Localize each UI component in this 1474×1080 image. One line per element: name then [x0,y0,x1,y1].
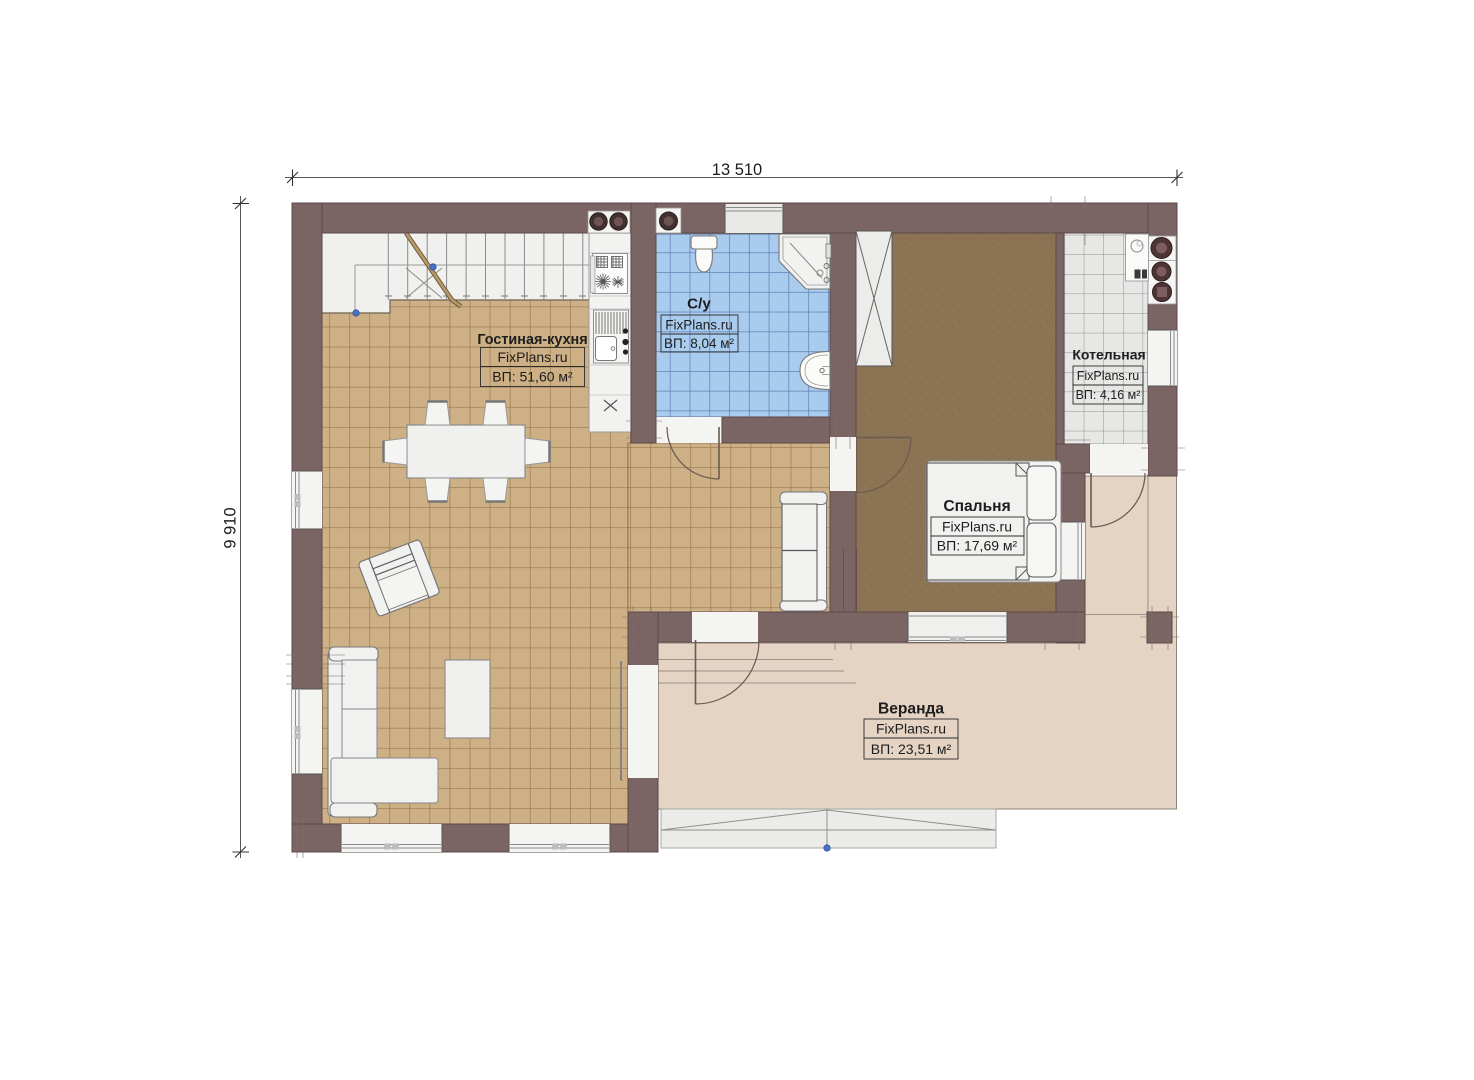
svg-text:Спальня: Спальня [943,498,1010,515]
svg-text:13 510: 13 510 [712,161,762,179]
svg-text:FixPlans.ru: FixPlans.ru [665,318,733,333]
svg-text:Веранда: Веранда [878,701,944,718]
svg-text:ВП: 4,16 м²: ВП: 4,16 м² [1076,388,1141,402]
svg-text:ВП: 23,51 м²: ВП: 23,51 м² [871,741,952,757]
svg-text:ВП: 51,60 м²: ВП: 51,60 м² [492,369,573,385]
svg-text:С/у: С/у [687,296,711,313]
svg-text:Котельная: Котельная [1072,347,1145,363]
svg-text:ВП: 8,04 м²: ВП: 8,04 м² [664,336,735,351]
svg-text:FixPlans.ru: FixPlans.ru [497,349,567,365]
svg-text:FixPlans.ru: FixPlans.ru [1077,369,1140,383]
svg-text:FixPlans.ru: FixPlans.ru [876,721,946,737]
svg-text:9 910: 9 910 [222,507,240,548]
svg-text:Гостиная-кухня: Гостиная-кухня [477,332,587,348]
svg-text:ВП: 17,69 м²: ВП: 17,69 м² [937,538,1018,554]
svg-text:FixPlans.ru: FixPlans.ru [942,519,1012,535]
